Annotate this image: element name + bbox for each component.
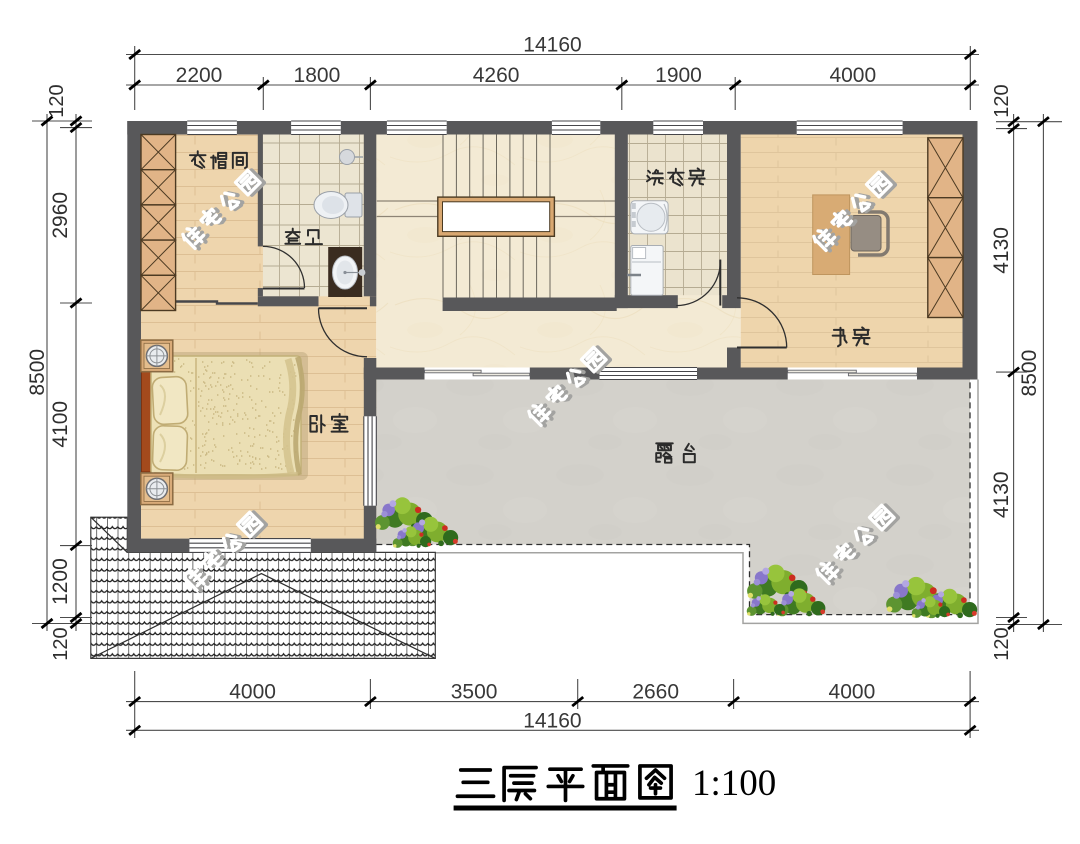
svg-text:14160: 14160 [523,710,581,733]
svg-text:120: 120 [991,627,1013,660]
svg-text:2200: 2200 [176,64,223,87]
svg-text:1200: 1200 [49,558,72,605]
svg-text:14160: 14160 [523,34,581,57]
svg-text:1900: 1900 [655,64,702,87]
svg-text:3500: 3500 [451,681,498,704]
svg-text:4000: 4000 [829,64,876,87]
svg-text:2660: 2660 [632,681,679,704]
svg-text:8500: 8500 [26,349,49,396]
svg-text:8500: 8500 [1018,350,1041,397]
svg-text:2960: 2960 [49,192,72,239]
svg-text:4000: 4000 [829,681,876,704]
svg-text:4260: 4260 [473,64,520,87]
svg-text:1:100: 1:100 [692,763,776,804]
svg-text:4130: 4130 [990,471,1013,518]
svg-text:4100: 4100 [49,401,72,448]
svg-text:4130: 4130 [990,227,1013,274]
svg-text:4000: 4000 [229,681,276,704]
svg-text:120: 120 [46,84,68,117]
svg-text:1800: 1800 [294,64,341,87]
svg-text:120: 120 [991,84,1013,117]
svg-text:120: 120 [50,627,72,660]
